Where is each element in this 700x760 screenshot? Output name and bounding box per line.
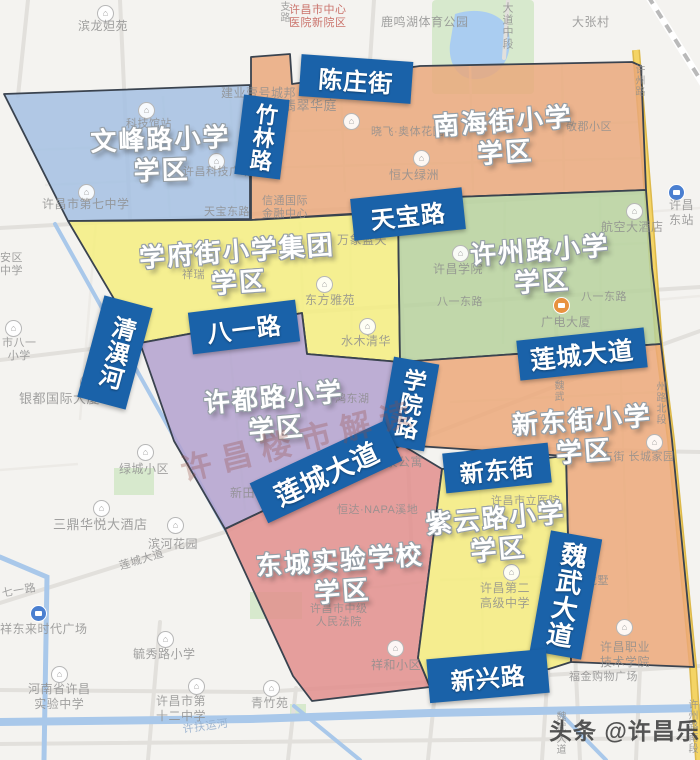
district-region-8 — [418, 456, 571, 687]
district-regions-layer — [0, 0, 700, 760]
school-district-map: ⌂⌂⌂⌂⌂⌂⌂⌂⌂⌂⌂⌂⌂⌂⌂⌂⌂⌂⌂⌂⌂⌂⌂ 滨龙妲苑许昌市中心 医院新院区鹿… — [0, 0, 700, 760]
district-region-1 — [4, 85, 250, 221]
district-region-4 — [398, 190, 661, 362]
